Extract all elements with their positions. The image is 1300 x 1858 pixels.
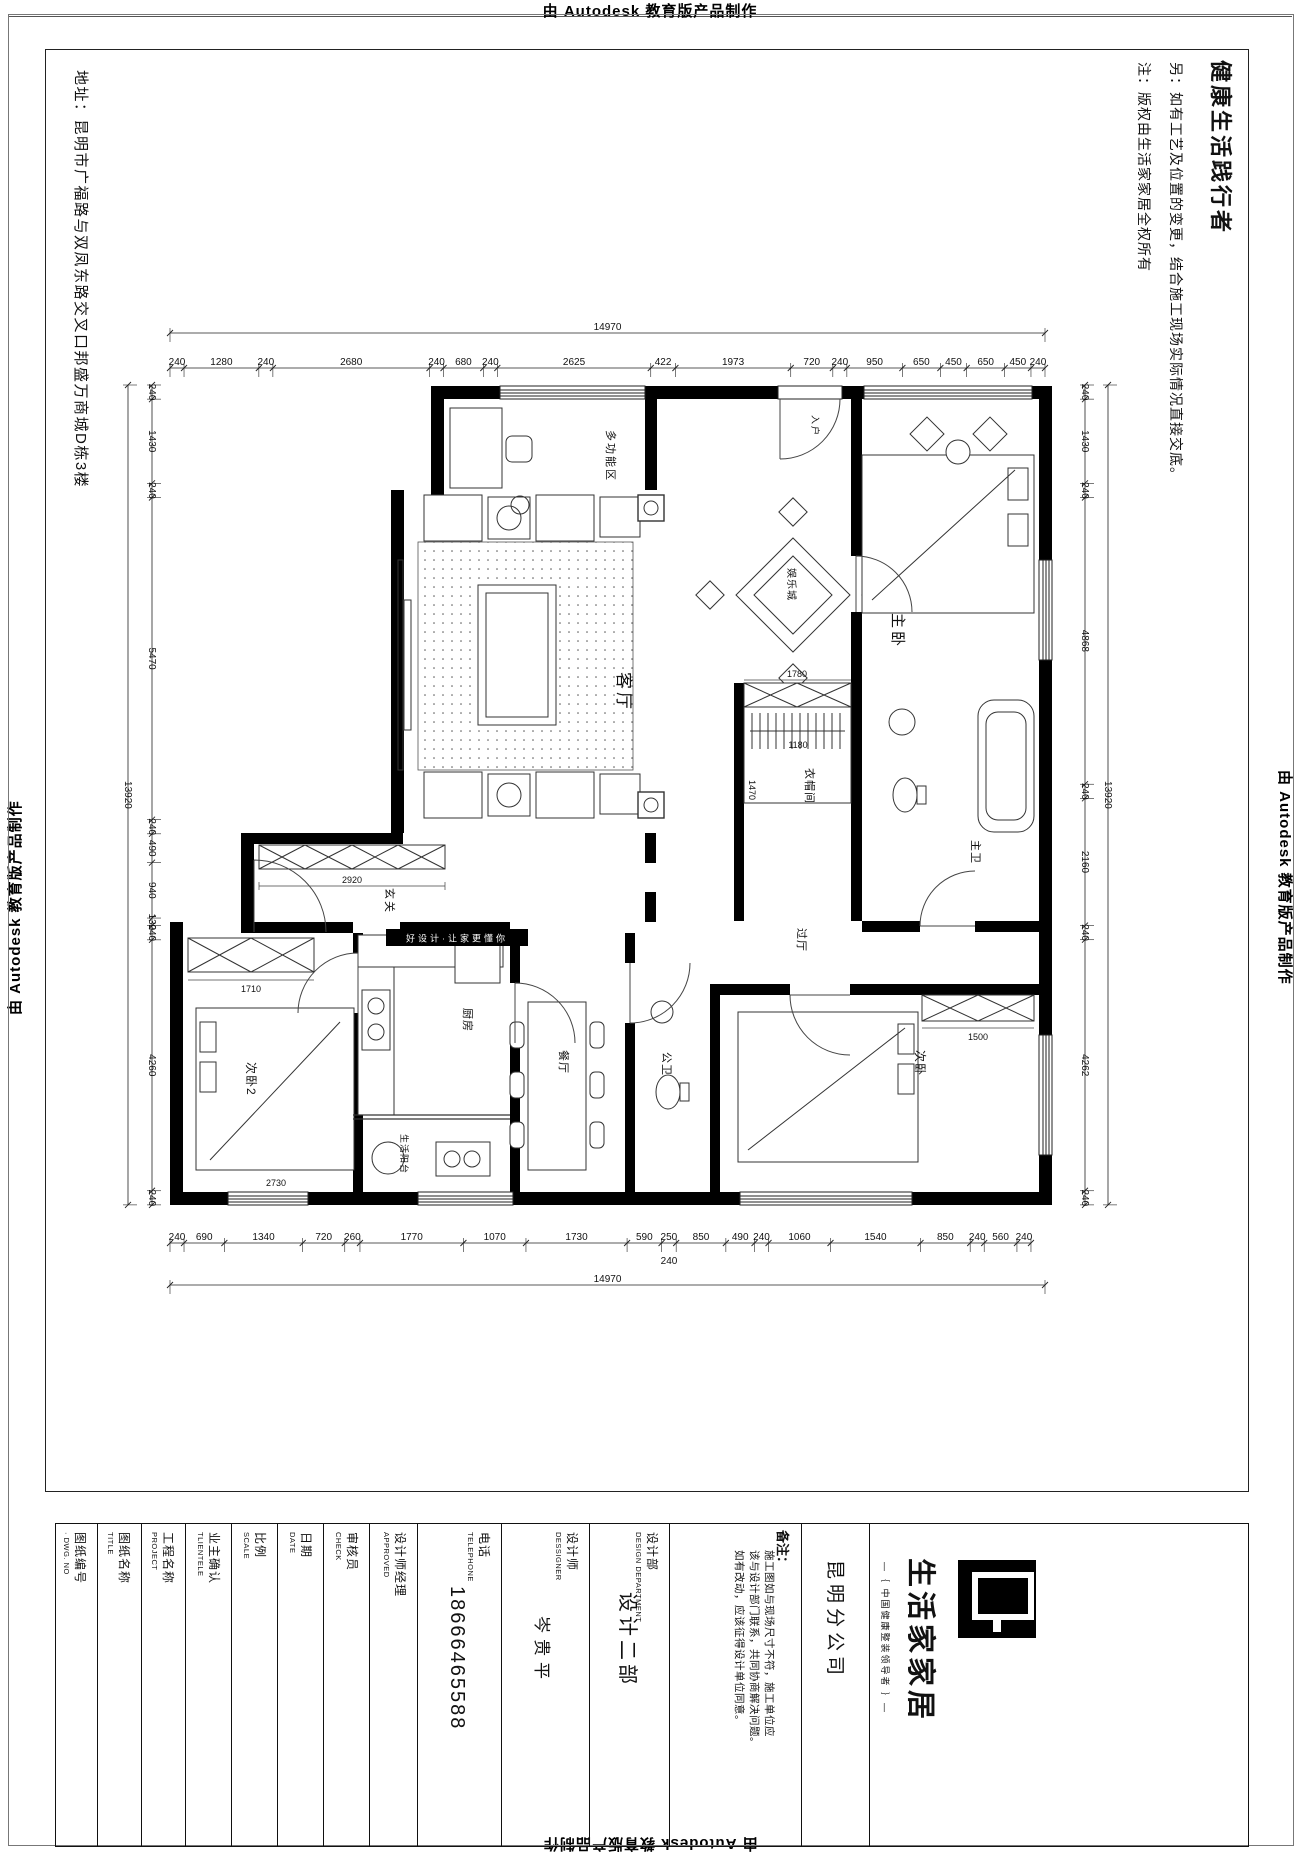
svg-text:主卧: 主卧	[889, 613, 906, 649]
svg-text:450: 450	[945, 357, 962, 368]
svg-text:娱乐城: 娱乐城	[785, 568, 798, 601]
furniture	[188, 408, 1034, 1176]
svg-text:1280: 1280	[210, 357, 233, 368]
svg-text:240: 240	[146, 924, 157, 941]
svg-text:422: 422	[655, 357, 672, 368]
svg-text:1470: 1470	[747, 780, 757, 800]
svg-text:1973: 1973	[722, 357, 745, 368]
telephone-value: 18666465588	[445, 1586, 468, 1730]
svg-text:450: 450	[1009, 357, 1026, 368]
svg-text:240: 240	[146, 482, 157, 499]
svg-text:4262: 4262	[1079, 1054, 1090, 1077]
svg-text:多功能区: 多功能区	[604, 430, 618, 482]
brand-name: 生活家家居	[902, 1558, 944, 1723]
svg-text:衣帽间: 衣帽间	[803, 768, 817, 804]
field-date: 日期DATE	[288, 1532, 315, 1558]
svg-text:玄关: 玄关	[383, 888, 397, 914]
svg-text:4868: 4868	[1079, 630, 1090, 653]
svg-text:次卧2: 次卧2	[244, 1062, 258, 1096]
dim-bottom-sub: 240	[661, 1256, 678, 1267]
svg-text:850: 850	[693, 1232, 710, 1243]
svg-text:240: 240	[169, 357, 186, 368]
company-name: 昆明分公司	[823, 1560, 850, 1680]
svg-text:240: 240	[1079, 924, 1090, 941]
svg-text:1070: 1070	[484, 1232, 507, 1243]
svg-text:1180: 1180	[788, 740, 807, 750]
svg-text:14970: 14970	[594, 1274, 622, 1285]
brand-tagline: —｛ 中国健康整装领导者 ｝—	[879, 1562, 892, 1714]
svg-text:240: 240	[1079, 783, 1090, 800]
svg-text:260: 260	[344, 1232, 361, 1243]
svg-text:240: 240	[146, 818, 157, 835]
svg-text:680: 680	[455, 357, 472, 368]
field-designer: 设计师DESSIGNER	[554, 1532, 581, 1581]
svg-text:240: 240	[258, 357, 275, 368]
svg-text:490: 490	[732, 1232, 749, 1243]
svg-text:1430: 1430	[146, 430, 157, 453]
svg-text:490: 490	[146, 840, 157, 857]
svg-text:240: 240	[831, 357, 848, 368]
watermark-strip: 好设计·让家更懂你	[386, 929, 528, 946]
svg-text:4260: 4260	[146, 1054, 157, 1077]
svg-text:2625: 2625	[563, 357, 586, 368]
svg-text:2730: 2730	[266, 1178, 286, 1188]
svg-text:240: 240	[969, 1232, 986, 1243]
svg-text:240: 240	[1079, 482, 1090, 499]
svg-text:650: 650	[913, 357, 930, 368]
svg-text:1710: 1710	[241, 984, 261, 994]
field-approved: 设计师经理APPROVED	[382, 1532, 409, 1597]
svg-text:1730: 1730	[565, 1232, 588, 1243]
svg-text:240: 240	[1030, 357, 1047, 368]
svg-text:2160: 2160	[1079, 851, 1090, 874]
svg-text:250: 250	[661, 1232, 678, 1243]
field-project: 工程名称PROJECT	[150, 1532, 177, 1584]
note-text: 施工图如与现场尺寸不符，施工单位应 该与设计部门联系，共同协商解决问题。 如有改…	[731, 1550, 776, 1748]
note-label: 备注：	[774, 1530, 793, 1569]
svg-text:5470: 5470	[146, 647, 157, 670]
svg-text:240: 240	[1079, 384, 1090, 401]
designer-value: 岑贵平	[531, 1616, 556, 1685]
svg-text:240: 240	[482, 357, 499, 368]
field-telephone: 电话TELEPHONE	[466, 1532, 493, 1582]
svg-text:1430: 1430	[1079, 430, 1090, 453]
svg-text:13920: 13920	[122, 781, 133, 809]
svg-text:客厅: 客厅	[614, 672, 633, 712]
svg-text:720: 720	[803, 357, 820, 368]
svg-text:主卫: 主卫	[969, 840, 982, 864]
svg-text:1780: 1780	[787, 669, 807, 679]
svg-text:940: 940	[146, 882, 157, 899]
department-value: 设计二部	[615, 1592, 644, 1688]
svg-text:560: 560	[992, 1232, 1009, 1243]
svg-text:餐厅: 餐厅	[557, 1050, 571, 1074]
drawing-page: 由 Autodesk 教育版产品制作 由 Autodesk 教育版产品制作 由 …	[0, 0, 1300, 1858]
field-clientele: 业主确认TLIENTELE	[196, 1532, 223, 1584]
svg-text:240: 240	[146, 384, 157, 401]
field-check: 审核员CHECK	[334, 1532, 361, 1571]
svg-text:850: 850	[937, 1232, 954, 1243]
svg-text:1060: 1060	[788, 1232, 811, 1243]
svg-text:生活阳台: 生活阳台	[399, 1134, 410, 1174]
svg-text:13920: 13920	[1102, 781, 1113, 809]
field-scale: 比例SCALE	[242, 1532, 269, 1559]
svg-text:240: 240	[146, 1189, 157, 1206]
svg-text:950: 950	[866, 357, 883, 368]
svg-text:过厅: 过厅	[795, 928, 808, 952]
svg-text:2920: 2920	[342, 875, 362, 885]
svg-text:14970: 14970	[594, 322, 622, 333]
field-dwg-no: 图纸编号· DWG. NO	[62, 1532, 89, 1584]
svg-text:2680: 2680	[340, 357, 363, 368]
svg-text:入户: 入户	[810, 415, 821, 437]
svg-text:650: 650	[977, 357, 994, 368]
svg-text:240: 240	[169, 1232, 186, 1243]
svg-text:1340: 1340	[252, 1232, 275, 1243]
svg-text:240: 240	[753, 1232, 770, 1243]
svg-text:240: 240	[1079, 1189, 1090, 1206]
field-title: 图纸名称TITLE	[106, 1532, 133, 1584]
svg-text:1500: 1500	[968, 1032, 988, 1042]
brand-logo	[958, 1560, 1036, 1638]
svg-text:次卧: 次卧	[913, 1050, 927, 1076]
svg-text:590: 590	[636, 1232, 653, 1243]
svg-text:厨房: 厨房	[461, 1008, 474, 1032]
svg-text:690: 690	[196, 1232, 213, 1243]
svg-text:240: 240	[1016, 1232, 1033, 1243]
svg-text:公卫: 公卫	[660, 1052, 672, 1076]
svg-text:720: 720	[315, 1232, 332, 1243]
watermark-text: 好设计·让家更懂你	[406, 933, 508, 944]
svg-text:1770: 1770	[401, 1232, 424, 1243]
title-block: 图纸编号· DWG. NO 图纸名称TITLE 工程名称PROJECT 业主确认…	[55, 1523, 1249, 1847]
svg-text:240: 240	[428, 357, 445, 368]
svg-text:1540: 1540	[864, 1232, 887, 1243]
